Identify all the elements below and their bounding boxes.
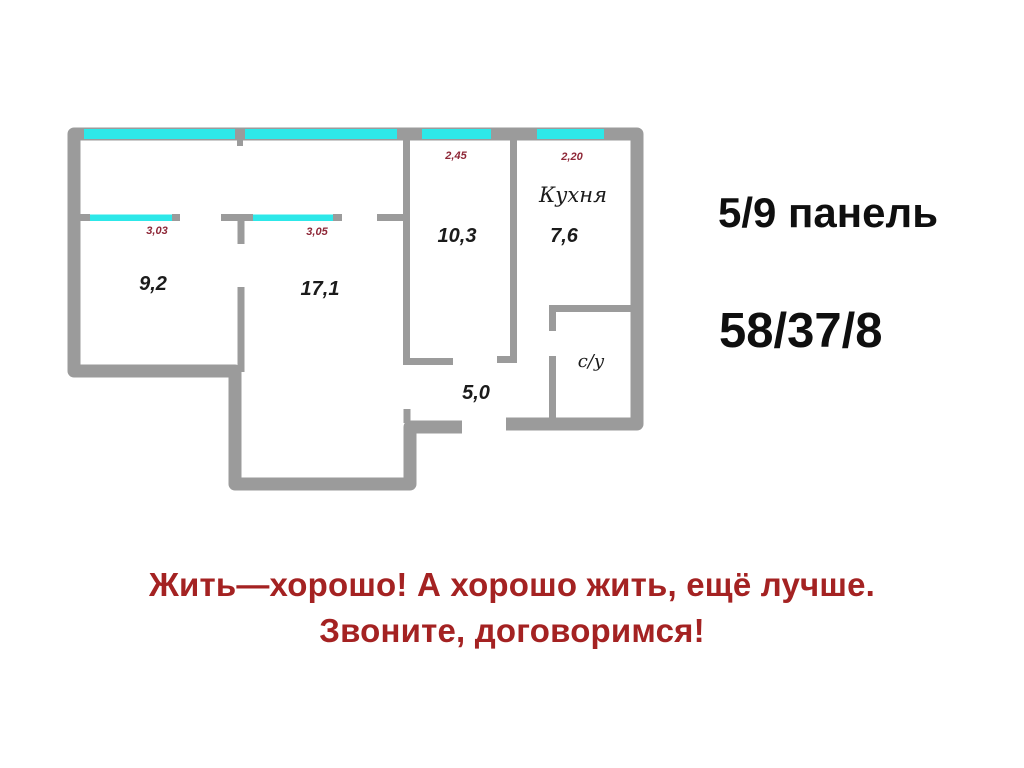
room1-width-dimension: 3,03 — [146, 225, 167, 237]
facade-window-4 — [537, 129, 604, 139]
room3-width-dimension: 2,45 — [444, 150, 467, 162]
balcony-wall-segment — [172, 214, 180, 221]
wall-room2-room3 — [403, 140, 410, 365]
kitchen-area-label: 7,6 — [550, 225, 579, 247]
page: 9,2 17,1 10,3 7,6 5,0 Кухня с/у 3,03 3,0… — [0, 0, 1024, 768]
facade-window-3 — [422, 129, 491, 139]
balcony-wall-segment — [377, 214, 404, 221]
slogan-line-1: Жить—хорошо! А хорошо жить, ещё лучше. — [0, 562, 1024, 608]
room2-area-label: 17,1 — [301, 278, 340, 300]
kitchen-name-label: Кухня — [538, 183, 607, 207]
balcony-wall-segment — [221, 214, 253, 221]
wall-kitchen-foot — [497, 356, 517, 363]
wall-room3-kitchen — [510, 140, 517, 356]
balcony-window-room2 — [253, 215, 333, 222]
top-wall-tick — [237, 140, 243, 146]
slogan-line-2: Звоните, договоримся! — [0, 608, 1024, 654]
kitchen-width-dimension: 2,20 — [560, 151, 583, 163]
wall-room1-room2-stem — [238, 219, 245, 244]
bathroom-name-label: с/у — [578, 351, 605, 372]
facade-window-2 — [245, 129, 397, 139]
room3-area-label: 10,3 — [438, 225, 477, 247]
balcony-window-room1 — [90, 215, 172, 222]
area-metrics-text: 58/37/8 — [719, 303, 883, 359]
balcony-wall-segment — [74, 214, 90, 221]
wall-room3-bottom — [403, 358, 453, 365]
wall-bathroom-top — [549, 305, 637, 312]
room2-width-dimension: 3,05 — [306, 226, 328, 238]
floor-info-text: 5/9 панель — [718, 189, 938, 237]
wall-room1-room2 — [238, 287, 245, 372]
slogan: Жить—хорошо! А хорошо жить, ещё лучше. З… — [0, 562, 1024, 654]
wall-bathroom-left-lower — [549, 356, 556, 426]
facade-window-1 — [84, 129, 235, 139]
wall-bathroom-left-upper — [549, 305, 556, 331]
balcony-wall-segment — [333, 214, 342, 221]
entry-door-post — [404, 409, 411, 423]
room1-area-label: 9,2 — [139, 273, 167, 295]
hall-area-label: 5,0 — [462, 382, 490, 404]
